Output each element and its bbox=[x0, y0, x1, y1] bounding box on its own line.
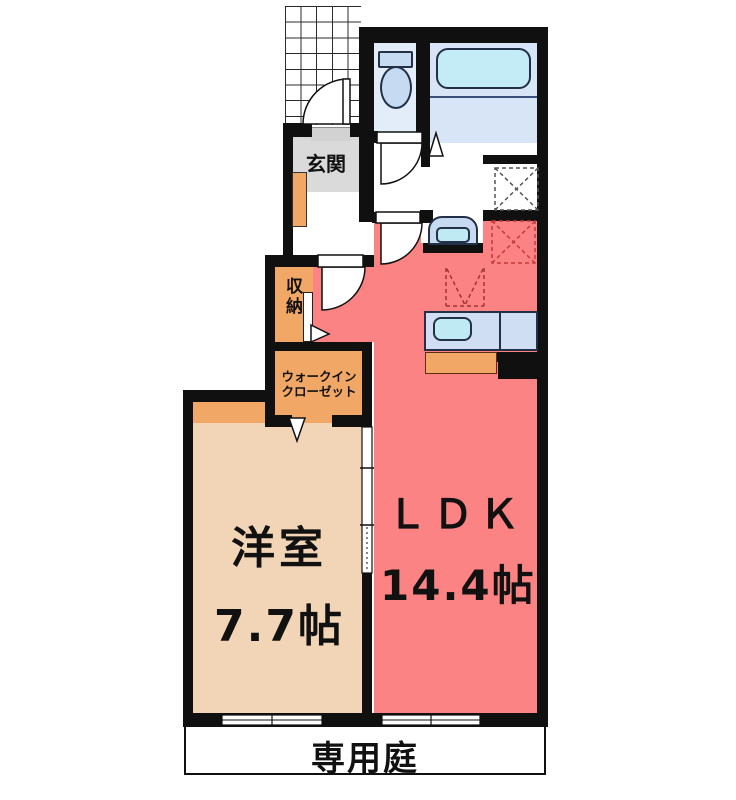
ldk-name: ＬＤＫ bbox=[380, 482, 532, 540]
range-hood-dashed-v-icon bbox=[446, 268, 484, 306]
ldk-window bbox=[382, 714, 480, 726]
entrance-door-leaf bbox=[343, 79, 350, 124]
refrigerator-space bbox=[492, 221, 535, 263]
shunou-door-triangle-icon bbox=[311, 325, 329, 342]
bedroom-name: 洋室 bbox=[200, 512, 358, 576]
bedroom-size: 7.7帖 bbox=[200, 590, 358, 654]
garden-label: 専用庭 bbox=[184, 731, 546, 780]
wic-door-triangle-icon bbox=[289, 418, 305, 441]
bath-folding-door-icon bbox=[429, 133, 443, 156]
symbol-overlay bbox=[0, 0, 736, 800]
toilet-door-swing bbox=[381, 143, 422, 184]
wic-label: ウォークイン クローゼット bbox=[277, 369, 361, 399]
ldk-label: ＬＤＫ 14.4帖 bbox=[380, 482, 532, 613]
washroom-door-leaf bbox=[376, 212, 420, 223]
toilet-door-leaf bbox=[377, 132, 422, 143]
bedroom-label: 洋室 7.7帖 bbox=[200, 512, 358, 654]
wic-label-line2: クローゼット bbox=[281, 384, 356, 399]
wic-label-line1: ウォークイン bbox=[281, 369, 356, 384]
hall-ldk-door-leaf bbox=[318, 255, 363, 267]
shunou-label: 収納 bbox=[280, 277, 305, 317]
washing-machine-space bbox=[495, 168, 538, 210]
washroom-door-swing bbox=[381, 223, 422, 264]
bedroom-sliding-door bbox=[360, 427, 374, 573]
floor-plan: 玄関 収納 ウォークイン クローゼット 洋室 7.7帖 ＬＤＫ 14.4帖 専用… bbox=[0, 0, 736, 800]
bedroom-window bbox=[222, 714, 322, 726]
genkan-label: 玄関 bbox=[293, 148, 359, 177]
ldk-size: 14.4帖 bbox=[380, 552, 532, 613]
entrance-door-swing bbox=[303, 79, 348, 124]
hall-ldk-door-swing bbox=[322, 267, 365, 310]
